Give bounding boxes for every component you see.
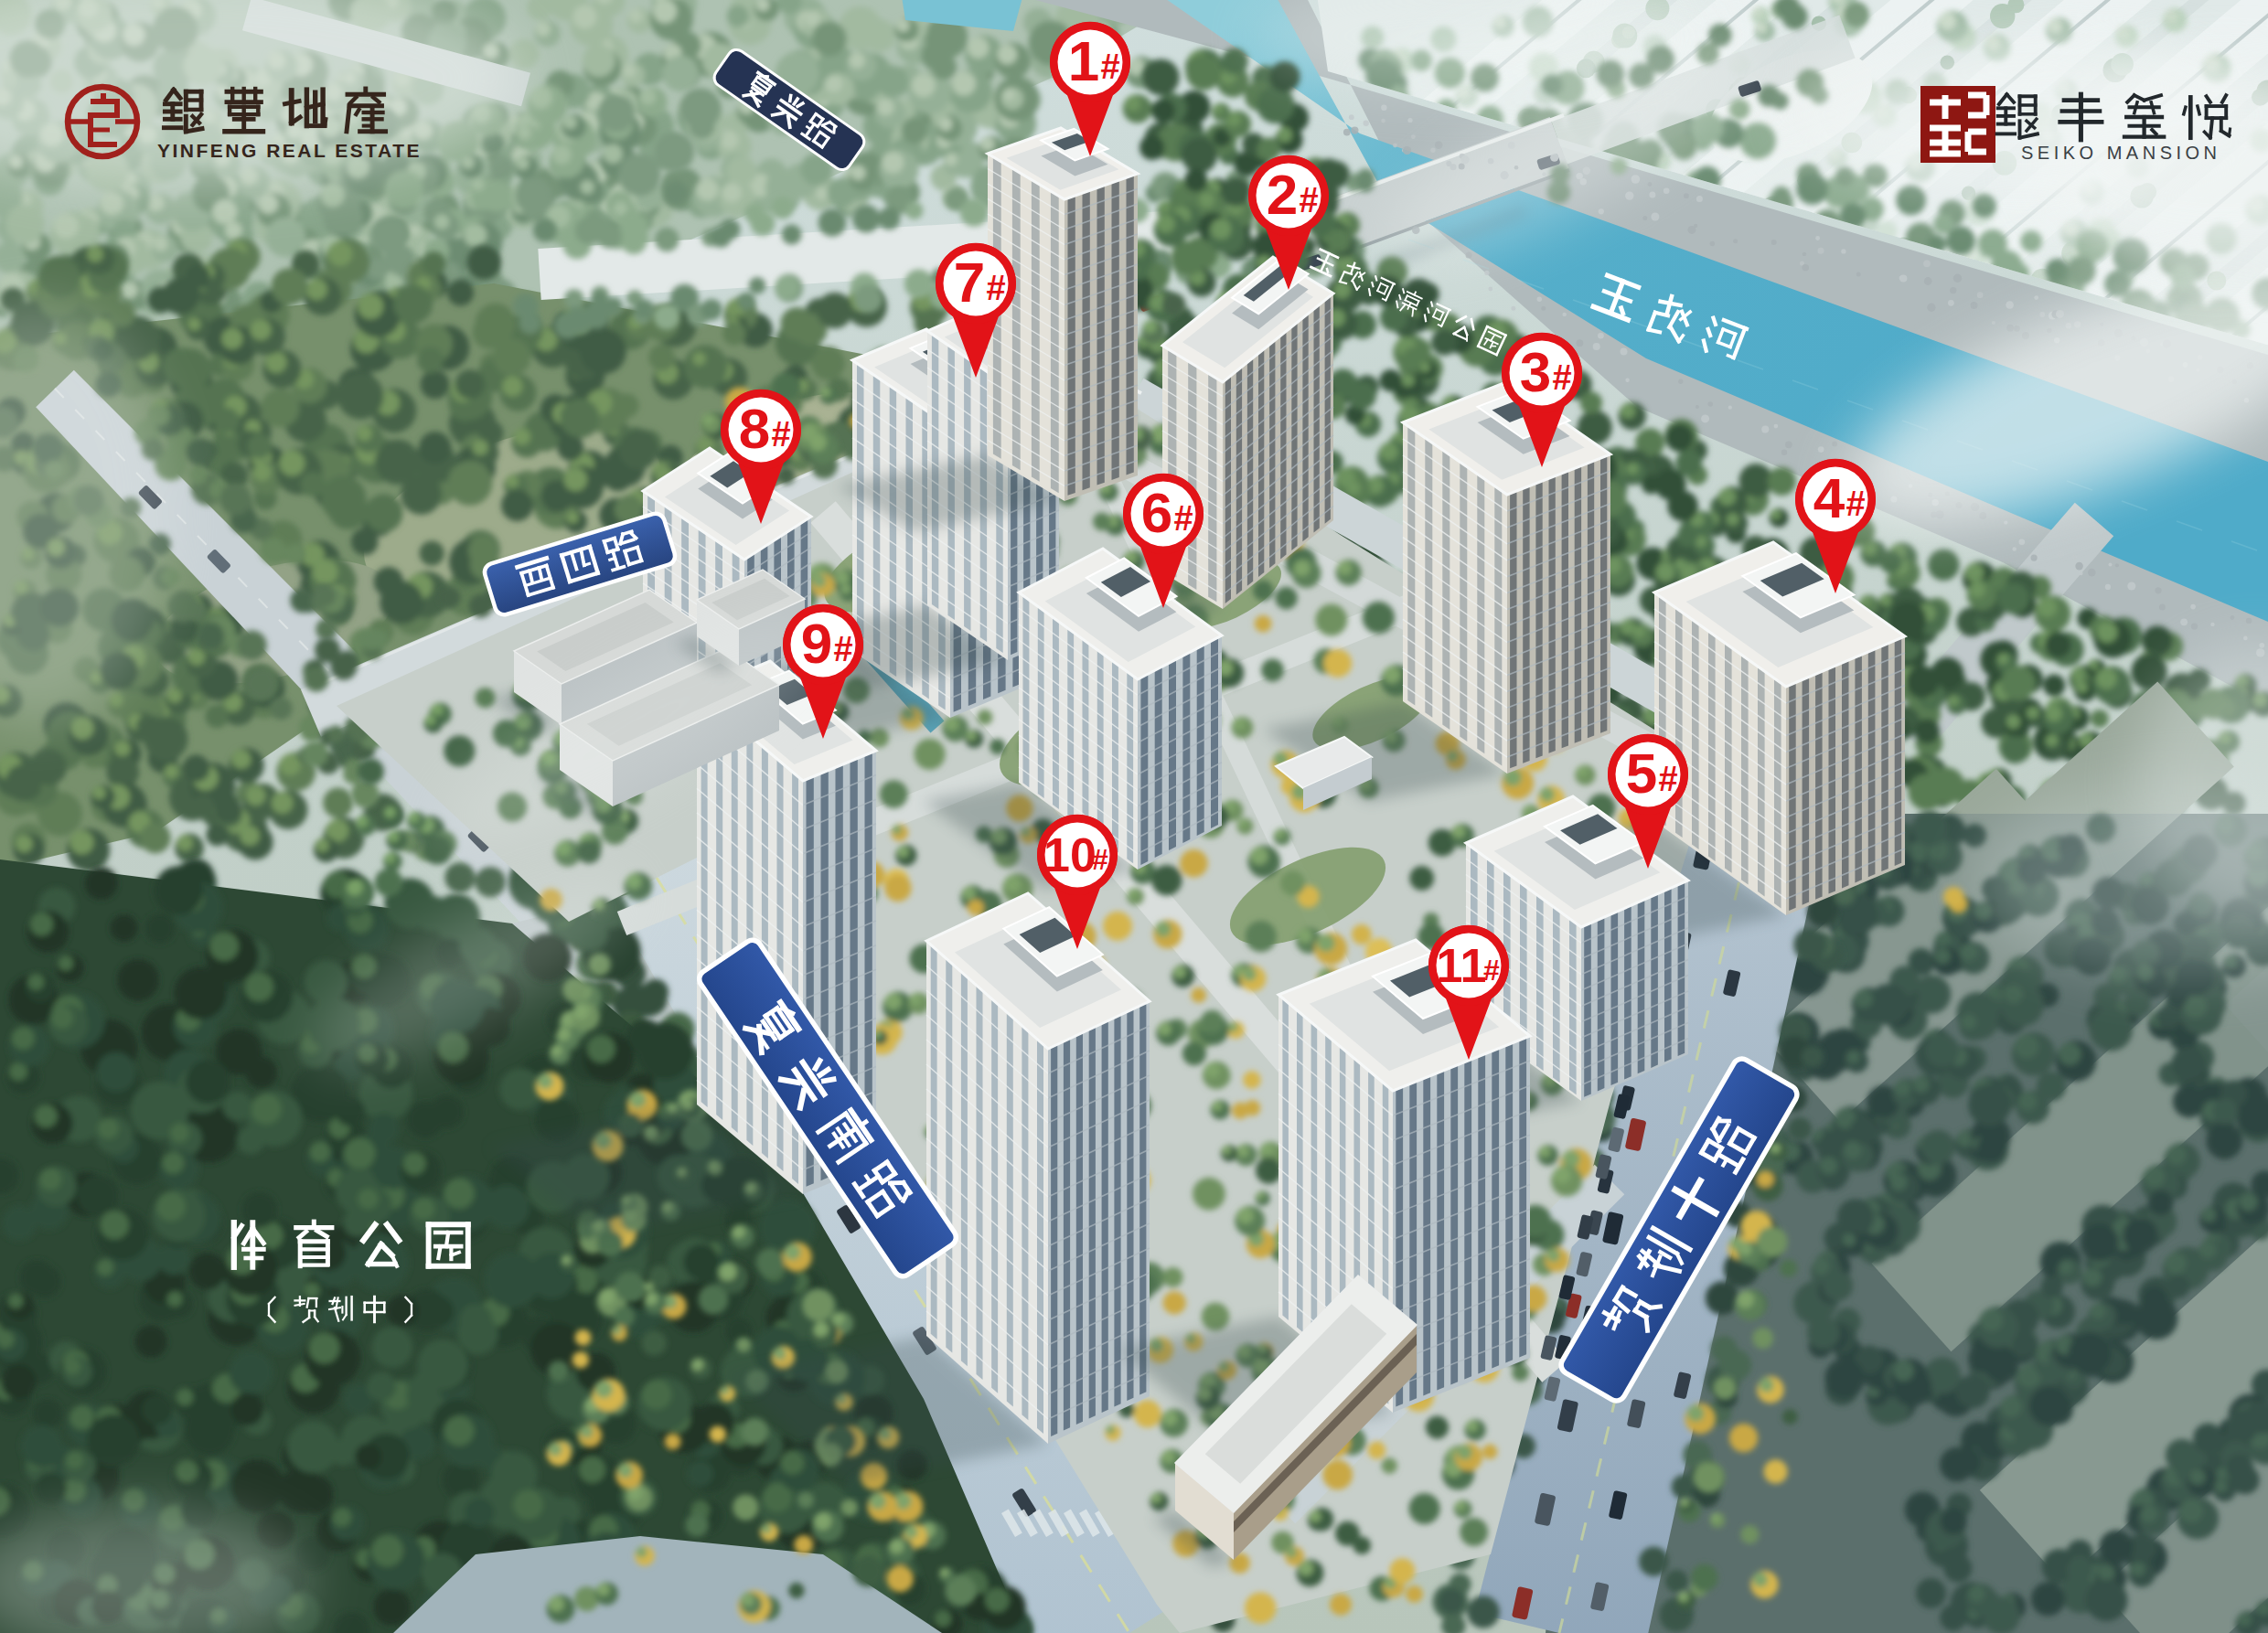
svg-text:#: # <box>1845 485 1865 523</box>
svg-text:7: 7 <box>954 251 985 314</box>
svg-text:10: 10 <box>1043 828 1097 881</box>
svg-text:2: 2 <box>1267 163 1298 226</box>
svg-text:SEIKO MANSION: SEIKO MANSION <box>2021 143 2221 163</box>
svg-text:#: # <box>1100 48 1119 86</box>
svg-text:#: # <box>833 630 852 668</box>
svg-text:#: # <box>1092 843 1108 876</box>
svg-text:9: 9 <box>801 612 832 675</box>
svg-text:#: # <box>1483 954 1500 987</box>
svg-text:#: # <box>1299 181 1318 219</box>
svg-text:#: # <box>1552 358 1571 397</box>
svg-text:3: 3 <box>1520 340 1551 403</box>
svg-text:6: 6 <box>1141 481 1172 544</box>
svg-text:#: # <box>1658 760 1677 798</box>
svg-text:#: # <box>986 269 1005 307</box>
svg-text:YINFENG REAL ESTATE: YINFENG REAL ESTATE <box>157 140 422 161</box>
svg-text:8: 8 <box>739 397 770 460</box>
svg-text:1: 1 <box>1068 29 1099 92</box>
svg-text:5: 5 <box>1626 742 1657 805</box>
svg-text:#: # <box>771 415 790 454</box>
svg-text:11: 11 <box>1437 939 1487 992</box>
svg-text:#: # <box>1173 499 1193 538</box>
svg-text:4: 4 <box>1813 466 1845 529</box>
